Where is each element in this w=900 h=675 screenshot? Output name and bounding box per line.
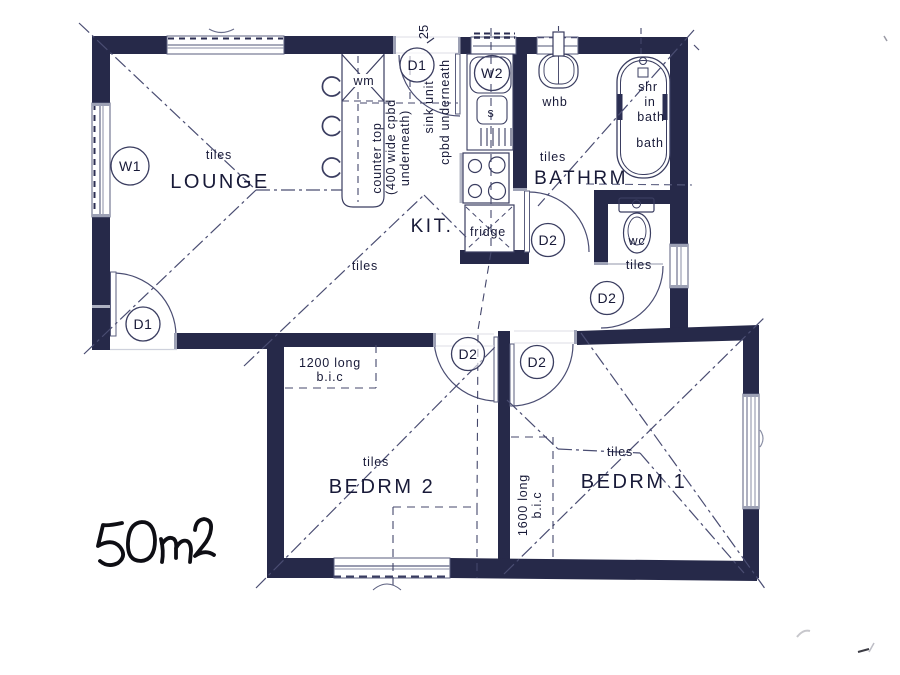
svg-text:D2: D2 (539, 232, 558, 248)
svg-text:KIT.: KIT. (411, 216, 454, 237)
svg-text:D2: D2 (528, 354, 547, 370)
svg-text:shr: shr (638, 80, 658, 94)
svg-text:BEDRM 1: BEDRM 1 (581, 471, 687, 493)
svg-text:1600 long: 1600 long (516, 474, 530, 536)
svg-text:bath: bath (636, 136, 664, 150)
svg-text:tiles: tiles (607, 445, 633, 459)
svg-text:tiles: tiles (363, 455, 389, 469)
svg-text:D2: D2 (598, 290, 617, 306)
svg-text:BATHRM: BATHRM (534, 168, 628, 189)
svg-text:(400 wide cpbd: (400 wide cpbd (384, 99, 398, 195)
svg-text:tiles: tiles (626, 258, 652, 272)
svg-text:counter top: counter top (370, 122, 384, 193)
svg-text:wc: wc (628, 234, 646, 248)
svg-text:underneath): underneath) (398, 110, 412, 186)
svg-text:D1: D1 (408, 57, 427, 73)
svg-text:25: 25 (416, 25, 431, 39)
svg-text:cpbd underneath: cpbd underneath (438, 59, 452, 165)
svg-text:wm: wm (352, 74, 374, 88)
svg-text:fridge: fridge (470, 225, 506, 239)
svg-text:tiles: tiles (352, 259, 378, 273)
svg-text:D2: D2 (459, 346, 478, 362)
svg-text:LOUNGE: LOUNGE (170, 171, 269, 193)
svg-text:bath: bath (637, 110, 665, 124)
svg-text:in: in (644, 95, 655, 109)
svg-text:tiles: tiles (540, 150, 566, 164)
svg-text:tiles: tiles (206, 148, 232, 162)
svg-text:D1: D1 (134, 316, 153, 332)
svg-text:whb: whb (541, 95, 567, 109)
svg-text:BEDRM 2: BEDRM 2 (329, 476, 435, 498)
svg-text:W1: W1 (119, 158, 141, 174)
svg-text:1200 long: 1200 long (299, 356, 361, 370)
svg-text:W2: W2 (481, 65, 503, 81)
svg-text:b.i.c: b.i.c (530, 492, 544, 519)
svg-text:s: s (487, 106, 494, 120)
svg-text:sink unit: sink unit (422, 80, 436, 133)
svg-text:b.i.c: b.i.c (317, 370, 344, 384)
